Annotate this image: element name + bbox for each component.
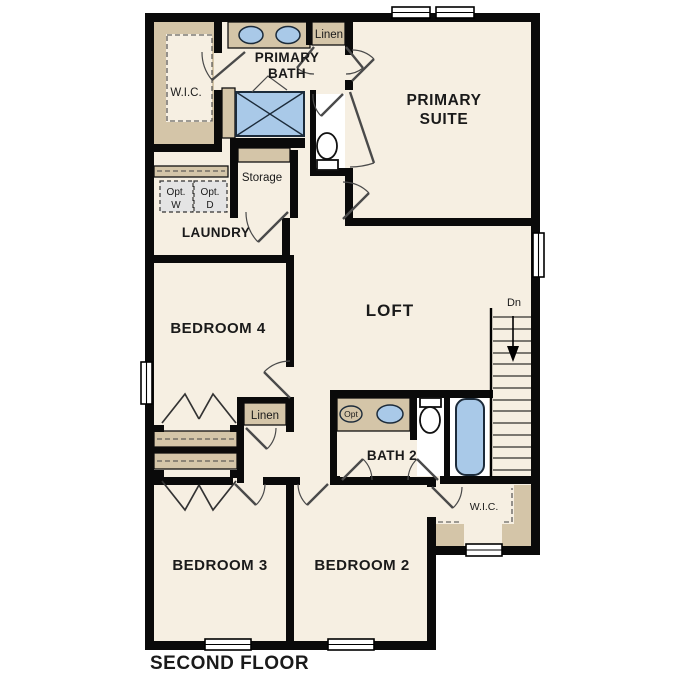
wic-top-inner-floor [166,34,212,122]
primary-toilet-bowl [317,133,337,159]
wall-bath2-left [330,390,337,476]
bath2-toilet-tank [420,398,441,407]
wic-bottom-window-notch [464,524,502,546]
wall-wic-bottom-top [440,476,531,484]
optional-dryer-label-2: D [206,200,213,211]
wall-linen-hall-top [237,397,294,403]
wall-exterior-top [145,13,540,22]
wall-hall-bottom-a [154,477,233,485]
floor-plan-page: Dn Opt Opt. W Opt. D [0,0,687,687]
wall-bedroom4-right [286,255,294,367]
wall-wic-top-bottom [145,144,222,152]
wall-bath2-vanity-divider [410,390,417,440]
wall-closet-mid [154,447,237,453]
wall-exterior-left [145,13,154,650]
wall-wic-top-right-a [214,13,222,53]
wall-linen-top-left [306,13,312,45]
wall-suite-bottom [345,218,540,226]
primary-suite-label-1: PRIMARY [406,92,481,109]
wall-hall-bottom-b [263,477,300,485]
wall-closet-jamb-a2 [230,425,244,432]
wall-closet-jamb-b2 [230,470,244,478]
wall-wc-left [310,90,316,176]
primary-toilet-tank [317,160,338,170]
storage-bench [238,148,290,162]
laundry-label: LAUNDRY [182,225,250,240]
stairs-dn-label: Dn [507,297,521,309]
wic-bottom-label: W.I.C. [470,501,499,513]
wall-storage-left [230,140,238,218]
wall-bath2-tub-divider [444,398,450,476]
optional-washer-label-2: W [171,200,181,211]
primary-bath-label-2: BATH [268,66,306,81]
shower-seat-strip [222,88,235,138]
bath2-optional-sink-label: Opt [344,409,358,419]
loft-label: LOFT [366,301,414,320]
primary-suite-label-2: SUITE [420,111,469,128]
wall-bath2-bottom-a [330,476,340,484]
bedroom3-label: BEDROOM 3 [172,557,267,574]
bedroom4-label: BEDROOM 4 [170,320,266,337]
bath2-sink [377,405,403,423]
wall-shower-bottom [230,138,305,148]
linen-top-label: Linen [315,29,343,41]
wic-top-label: W.I.C. [170,87,201,99]
wall-bath2-bottom-b [370,476,410,484]
primary-sink-right [276,27,300,44]
bedroom2-label: BEDROOM 2 [314,557,409,574]
floor-title: SECOND FLOOR [150,653,309,674]
wall-closet-jamb-a1 [154,425,164,432]
wall-suite-left-b [345,80,353,90]
primary-sink-left [239,27,263,44]
bathtub [456,399,484,475]
wall-storage-right [290,150,298,218]
optional-dryer-label-1: Opt. [201,187,220,198]
wall-exterior-right [531,13,540,555]
optional-washer-label-1: Opt. [167,187,186,198]
primary-bath-label-1: PRIMARY [255,50,320,65]
wall-bedroom-divider [286,477,294,650]
storage-label: Storage [242,172,282,184]
wall-wic-bottom-left-b [427,517,436,546]
wall-laundry-bottom [145,255,290,263]
bath2-label: BATH 2 [367,448,417,463]
wall-closet-jamb-b1 [154,470,164,478]
floor-plan-drawing: Dn Opt Opt. W Opt. D [0,0,687,687]
linen-hall-label: Linen [251,410,279,422]
bath2-toilet-bowl [420,407,440,433]
wall-wic-top-right-b [214,90,222,152]
wall-bedroom2-right [427,546,436,650]
wall-wic-bottom-left-a [427,477,436,487]
